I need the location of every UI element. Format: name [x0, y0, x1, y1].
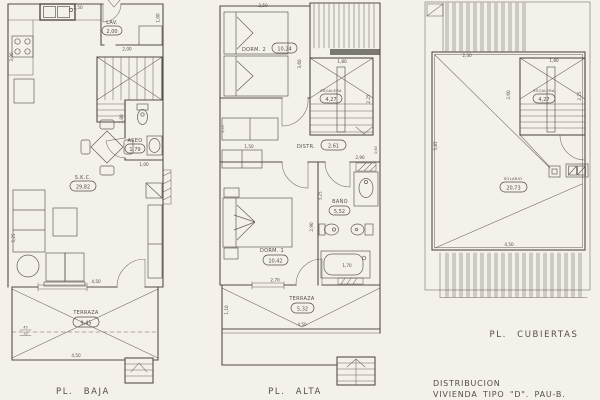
- washbasin: [359, 179, 373, 198]
- chair: [81, 140, 90, 154]
- bidet-back: [365, 224, 373, 235]
- room-label-escalera-alta: ESCALERA: [320, 88, 341, 93]
- dim-lav-height: 1,00: [156, 13, 161, 23]
- dim-roof-left: 5,85: [433, 141, 438, 151]
- burner: [15, 39, 20, 44]
- plan-alta: 2,50 DORM. 2 10,24 3,60 1,80 ESCALERA 4,…: [220, 3, 380, 397]
- sofa: [13, 190, 45, 252]
- area-aseo: 1,79: [129, 147, 140, 153]
- bidet-detail: [355, 228, 358, 231]
- stairs-outline: [97, 57, 162, 122]
- area-terraza-baja: 9,45: [80, 321, 91, 327]
- dim-terraza-width-alta: 4,50: [297, 322, 307, 327]
- washer: [139, 26, 162, 45]
- dim-kitchen-left: 3,00: [9, 52, 14, 62]
- area-dorm1: 10,42: [268, 259, 282, 265]
- dim-lav-width: 2,00: [122, 47, 132, 52]
- room-label-distr: DISTR.: [297, 144, 315, 150]
- area-bano: 5,52: [334, 209, 345, 215]
- blueprint-sheet: 2,50 3,00 LAV. 2,00 2,00 1,00 ASEO 1,79 …: [0, 0, 600, 400]
- dim-salon-left: 5,25: [11, 233, 16, 243]
- plan-baja: 2,50 3,00 LAV. 2,00 2,00 1,00 ASEO 1,79 …: [8, 0, 171, 397]
- kitchen-counter: [8, 20, 101, 75]
- nightstand: [224, 188, 239, 197]
- room-label-dorm2: DORM. 2: [242, 47, 266, 53]
- bed-fold: [236, 56, 253, 96]
- room-label-solario: SOLARIO: [504, 176, 522, 181]
- window-glazing: [252, 282, 284, 289]
- stairs-treads: [97, 57, 162, 116]
- burner: [25, 49, 30, 54]
- room-label-skc: S.K.C.: [75, 175, 92, 181]
- sink-bowl: [58, 7, 70, 18]
- dim-dorm2-right: 3,60: [297, 59, 302, 69]
- stairs-treads: [520, 58, 585, 128]
- dim-stairs-right: 2,25: [577, 91, 582, 101]
- dining-table: [91, 131, 123, 163]
- washbasin-counter: [354, 172, 378, 206]
- plan-label-baja: PL. BAJA: [56, 387, 110, 397]
- dim-stairs-top: 1,80: [337, 59, 347, 64]
- dim-aseo-width: 1,00: [139, 162, 149, 167]
- stair-void-hatch: [314, 4, 374, 48]
- fridge: [14, 79, 34, 103]
- toilet: [325, 224, 339, 235]
- dim-dorm1-width: 2,70: [270, 278, 280, 283]
- room-label-escalera-cub: ESCALERA: [533, 88, 554, 93]
- door-arcs: [282, 98, 350, 285]
- bed: [224, 56, 288, 96]
- armchair: [65, 253, 84, 281]
- toilet-tank: [137, 104, 148, 110]
- roof-slope-lines: [435, 55, 582, 248]
- stove: [12, 36, 33, 57]
- cabinet-diagonal: [146, 183, 162, 198]
- dim-distr-width: 2,90: [355, 155, 365, 160]
- drawing-title-line2: VIVIENDA TIPO "D". PAU-B.: [433, 390, 566, 399]
- dim-dorm2-top: 2,50: [258, 3, 268, 8]
- entry-steps-treads: [337, 359, 375, 385]
- chair: [100, 120, 114, 129]
- sink-bowl: [44, 7, 56, 18]
- area-terraza-alta: 5,32: [297, 307, 308, 313]
- stairs-door-arc: [560, 135, 585, 160]
- chair: [100, 166, 114, 175]
- nightstand: [224, 248, 238, 259]
- dim-closet: 1,50: [244, 144, 254, 149]
- dim-bano-left: 3,25: [318, 191, 323, 201]
- coffee-table: [44, 282, 85, 286]
- corner-box-diagonal: [427, 4, 443, 16]
- dim-salon-width: 4,50: [91, 279, 101, 284]
- sill-hatch: [338, 278, 363, 284]
- roof-vent: [549, 166, 560, 177]
- burner: [15, 49, 20, 54]
- dim-terraza-left: 1,10: [224, 305, 229, 315]
- pergola-slats-bottom: [440, 253, 587, 298]
- dim-closet-left: 0,55: [221, 125, 225, 132]
- skylight-slashes: [569, 166, 586, 175]
- bed-fold: [234, 198, 255, 247]
- dim-stairs-right: 2,25: [366, 94, 371, 104]
- bed: [223, 198, 292, 247]
- area-escalera-alta: 4,27: [325, 97, 336, 103]
- tv-unit: [148, 205, 162, 278]
- dim-solario-width: 4,50: [504, 242, 514, 247]
- dim-dorm1-right: 2,90: [309, 222, 314, 232]
- room-label-terraza-baja: TERRAZA: [72, 310, 99, 316]
- title-block: DISTRIBUCION VIVIENDA TIPO "D". PAU-B.: [433, 379, 566, 399]
- dim-roof-top: 2,30: [462, 53, 472, 58]
- toilet: [138, 110, 148, 125]
- dim-bath-length: 1,70: [342, 263, 352, 268]
- dim-aseo-height: 1,80: [119, 114, 124, 124]
- toilet-tank: [319, 224, 325, 235]
- plan-cubiertas: 2,30 1,80 ESCALERA 4,27 2,60 2,25 5,85 S…: [425, 2, 590, 340]
- party-wall-hatch: [163, 170, 171, 204]
- plan-label-alta: PL. ALTA: [268, 387, 322, 397]
- faucet: [364, 180, 367, 183]
- area-escalera-cub: 4,27: [538, 97, 549, 103]
- dim-terraza-width-baja: 4,50: [71, 353, 81, 358]
- plan-label-cubiertas: PL. CUBIERTAS: [490, 330, 579, 340]
- window-glazing: [38, 283, 87, 291]
- room-label-dorm1: DORM. 1: [260, 248, 284, 254]
- entry-steps: [125, 358, 153, 383]
- pergola-slats-top: [443, 3, 525, 51]
- level-lower: 10: [23, 331, 27, 335]
- bath-window-hatch: [356, 163, 376, 171]
- entry-arrow-icon: [108, 0, 120, 7]
- dim-stairs-top: 1,80: [549, 58, 559, 63]
- drain: [362, 256, 366, 260]
- room-label-aseo: ASEO: [128, 138, 143, 144]
- void-edge-bar: [330, 49, 380, 55]
- entry-steps-treads: [125, 363, 153, 376]
- burner: [25, 39, 30, 44]
- dim-hall-right: 0,60: [374, 146, 378, 153]
- level-upper: 45: [23, 326, 27, 330]
- floor-plan-drawing: 2,50 3,00 LAV. 2,00 2,00 1,00 ASEO 1,79 …: [0, 0, 600, 400]
- side-table: [53, 208, 77, 236]
- area-solario: 20,73: [506, 186, 520, 192]
- roof-vent-inner: [552, 169, 557, 174]
- area-dorm2: 10,24: [277, 47, 291, 53]
- round-table: [17, 255, 39, 277]
- armchair: [46, 253, 65, 281]
- room-label-bano: BAÑO: [332, 198, 348, 205]
- toilet-detail: [141, 113, 144, 116]
- area-skc: 29,82: [76, 185, 90, 191]
- faucet: [69, 8, 72, 11]
- dim-kitchen-top: 2,50: [73, 5, 83, 10]
- stairs-outline: [520, 58, 585, 135]
- roof-walls: [432, 52, 585, 250]
- room-label-lav: LAV.: [106, 20, 118, 26]
- room-label-terraza-alta: TERRAZA: [288, 296, 315, 302]
- area-lav: 2,00: [106, 29, 117, 35]
- toilet-detail: [332, 228, 335, 231]
- area-distr: 2,61: [328, 144, 339, 150]
- washbasin: [149, 139, 160, 153]
- dim-roof-mid: 2,60: [506, 90, 511, 100]
- sofa-cushions: [13, 210, 45, 230]
- drawing-title-line1: DISTRIBUCION: [433, 379, 501, 388]
